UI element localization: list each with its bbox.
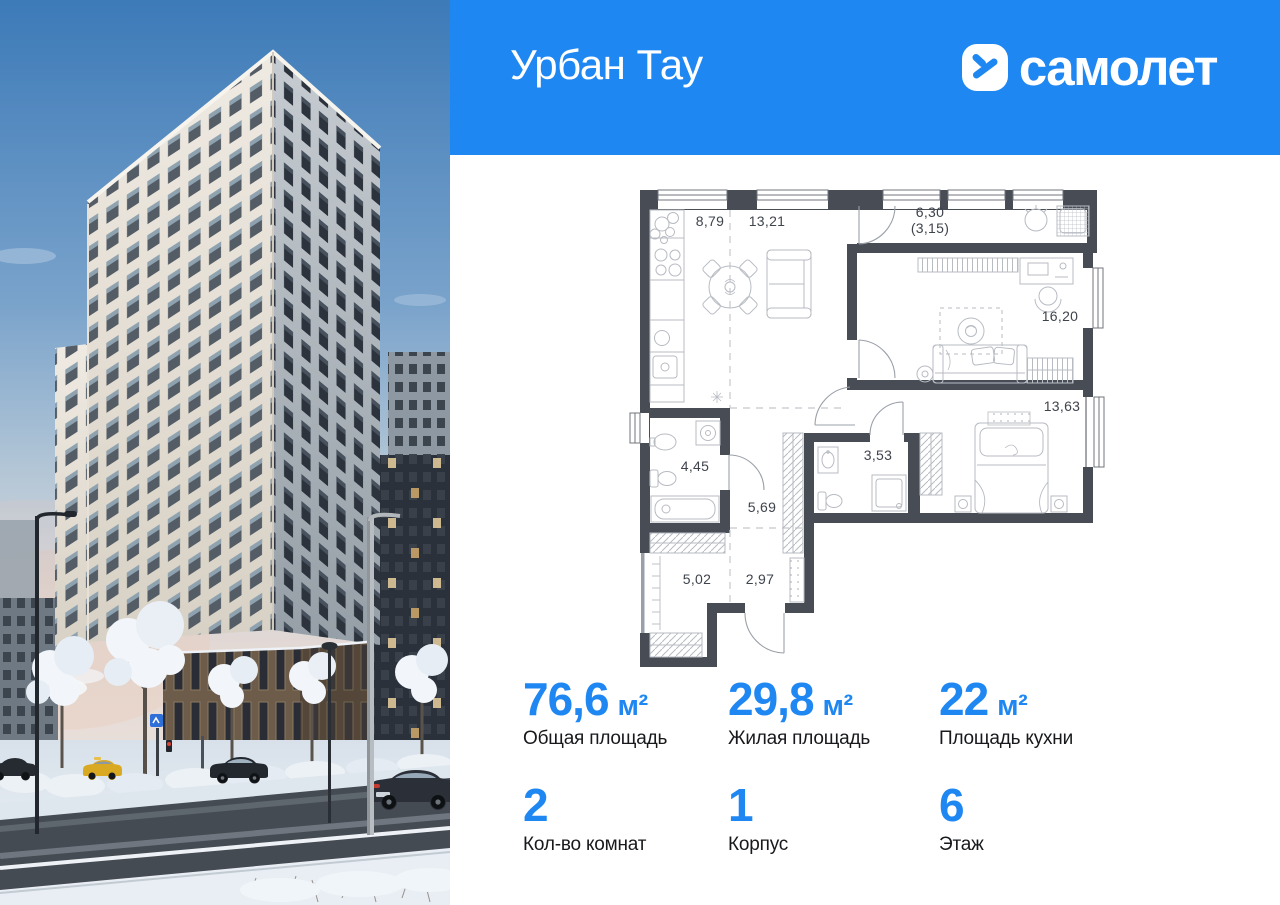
- stat-value: 2: [523, 782, 728, 828]
- building-photo: [0, 0, 450, 905]
- desk-icon: [1020, 258, 1073, 284]
- thin-wall: [641, 553, 645, 633]
- ceiling-projection: [940, 308, 1002, 354]
- stat-value: 1: [728, 782, 933, 828]
- header: Урбан Тау самолет: [450, 0, 1280, 155]
- kitchen-sink-icon: [653, 356, 677, 378]
- stat-living-area: 29,8м² Жилая площадь: [728, 676, 933, 750]
- room-area-label: 16,20: [1042, 308, 1079, 324]
- room-area-label: 3,53: [864, 447, 892, 463]
- info-panel: Урбан Тау самолет: [450, 0, 1280, 905]
- room-area-label: 5,69: [748, 499, 776, 515]
- brand-logo: самолет: [962, 42, 1217, 93]
- bath-sink-icon: [650, 434, 676, 450]
- plan-windows: [630, 190, 1104, 467]
- samolet-arrow-icon: [962, 44, 1008, 91]
- building-photo-illustration: [0, 0, 450, 905]
- shelf-icon: [918, 258, 1018, 272]
- stat-building: 1 Корпус: [728, 782, 933, 856]
- stat-value: 29,8м²: [728, 676, 933, 722]
- toilet-icon: [650, 470, 676, 487]
- room-area-label: 5,02: [683, 571, 711, 587]
- stat-kitchen-area: 22м² Площадь кухни: [939, 676, 1144, 750]
- stat-label: Жилая площадь: [728, 728, 933, 750]
- rug-icon: [917, 366, 933, 382]
- sofa-bed-icon: [933, 345, 1027, 383]
- floor-plan: 8,79 13,21 6,30 (3,15) 16,20 13,63 4,45 …: [620, 180, 1120, 690]
- room-area-label: 2,97: [746, 571, 774, 587]
- room-area-label: (3,15): [911, 220, 949, 236]
- room-area-label: 6,30: [916, 204, 944, 220]
- page-title: Урбан Тау: [510, 44, 703, 86]
- washing-machine-icon: [696, 421, 720, 445]
- plant-icon: [650, 213, 679, 244]
- bed-icon: [975, 423, 1048, 513]
- sofa-icon: [767, 250, 811, 318]
- wc-sink-icon: [818, 447, 838, 473]
- stat-value: 22м²: [939, 676, 1144, 722]
- nightstand-icons: [955, 496, 1067, 512]
- room-area-label: 8,79: [696, 213, 724, 229]
- stat-label: Общая площадь: [523, 728, 728, 750]
- stat-value: 76,6м²: [523, 676, 728, 722]
- brand-wordmark: самолет: [1019, 42, 1217, 93]
- room-area-label: 4,45: [681, 458, 709, 474]
- stat-total-area: 76,6м² Общая площадь: [523, 676, 728, 750]
- stat-floor: 6 Этаж: [939, 782, 1144, 856]
- floor-drain-icon: [711, 391, 723, 403]
- oven-icon: [655, 331, 670, 346]
- room-area-label: 13,21: [749, 213, 786, 229]
- storage-rod-icon: [652, 556, 660, 630]
- stat-label: Этаж: [939, 834, 1144, 856]
- stat-label: Площадь кухни: [939, 728, 1144, 750]
- stat-rooms-count: 2 Кол-во комнат: [523, 782, 728, 856]
- hob-icon: [655, 249, 681, 276]
- balcony-table-icon: [1057, 206, 1089, 236]
- stat-label: Кол-во комнат: [523, 834, 728, 856]
- rug-plant-icon: [958, 318, 984, 344]
- room-area-label: 13,63: [1044, 398, 1081, 414]
- balcony-chair-icon: [1025, 205, 1047, 231]
- shower-icon: [872, 475, 906, 511]
- stat-value: 6: [939, 782, 1144, 828]
- wc-toilet-icon: [818, 492, 842, 510]
- bathtub-icon: [651, 496, 719, 522]
- apartment-card: Урбан Тау самолет: [0, 0, 1280, 905]
- stat-label: Корпус: [728, 834, 933, 856]
